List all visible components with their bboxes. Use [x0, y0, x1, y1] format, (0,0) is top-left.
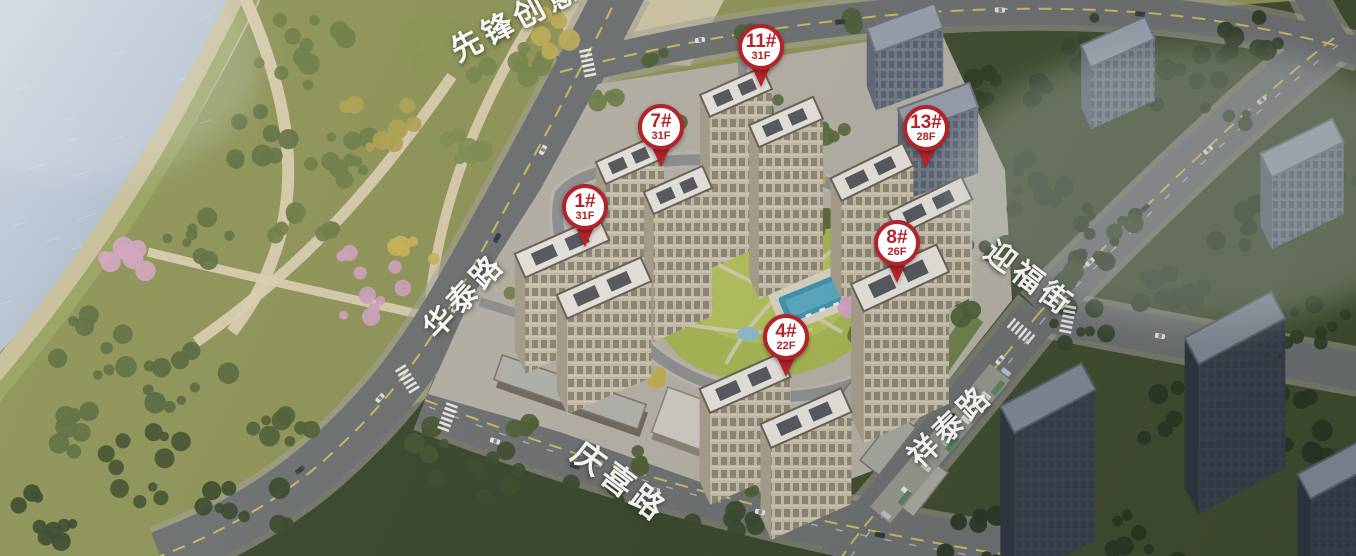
pin-bubble: 1#31F — [562, 184, 608, 230]
residential-tower — [644, 166, 712, 342]
aerial-masterplan-map: 先锋创意华泰路迎福街祥泰路庆喜路 1#31F7#31F11#31F13#28F8… — [0, 0, 1356, 556]
pin-building-number: 7# — [650, 113, 671, 131]
pin-building-number: 11# — [746, 33, 777, 51]
pin-building-number: 4# — [775, 323, 796, 341]
pin-bubble: 4#22F — [763, 314, 809, 360]
pin-floor-count: 31F — [752, 51, 771, 62]
pin-bubble: 8#26F — [874, 220, 920, 266]
pin-bubble: 11#31F — [738, 24, 784, 70]
pin-building-number: 8# — [886, 229, 907, 247]
pin-floor-count: 31F — [576, 211, 595, 222]
pin-building-number: 1# — [574, 193, 595, 211]
site-aerial-rendering — [0, 0, 1356, 556]
pin-bubble: 7#31F — [638, 104, 684, 150]
residential-tower — [749, 97, 823, 299]
pin-floor-count: 28F — [917, 132, 936, 143]
pin-floor-count: 31F — [652, 131, 671, 142]
pin-bubble: 13#28F — [903, 105, 949, 151]
pin-floor-count: 22F — [777, 341, 796, 352]
pin-floor-count: 26F — [888, 247, 907, 258]
pin-building-number: 13# — [910, 114, 942, 132]
